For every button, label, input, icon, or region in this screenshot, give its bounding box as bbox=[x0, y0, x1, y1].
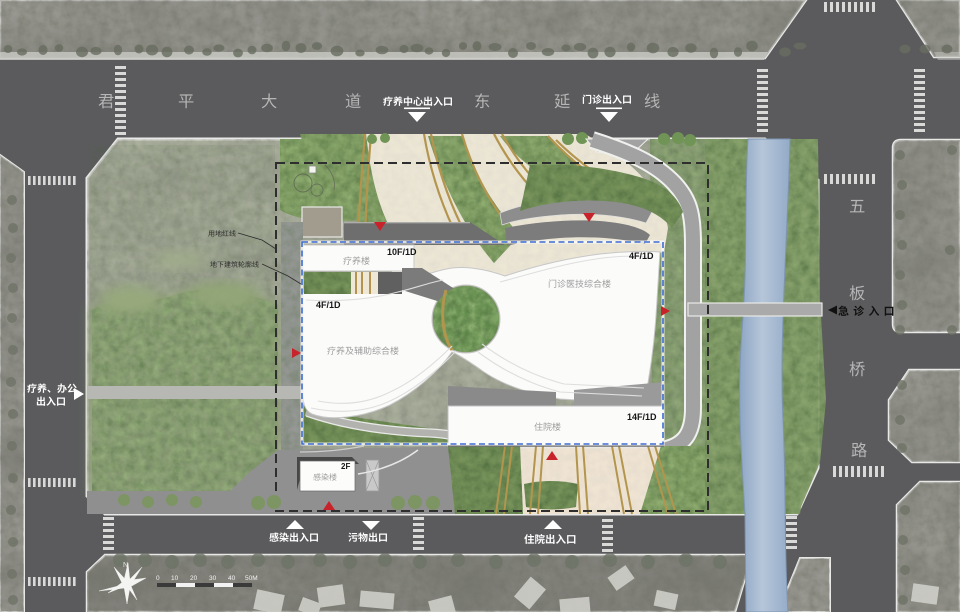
svg-text:4F/1D: 4F/1D bbox=[629, 251, 654, 261]
svg-text:30: 30 bbox=[209, 575, 217, 582]
svg-text:0: 0 bbox=[156, 575, 160, 582]
svg-text:2F: 2F bbox=[341, 462, 350, 471]
svg-text:40: 40 bbox=[228, 575, 236, 582]
svg-text:10F/1D: 10F/1D bbox=[387, 247, 417, 257]
svg-text:20: 20 bbox=[190, 575, 198, 582]
svg-text:14F/1D: 14F/1D bbox=[627, 412, 657, 422]
svg-text:4F/1D: 4F/1D bbox=[316, 300, 341, 310]
svg-text:50M: 50M bbox=[245, 575, 258, 582]
svg-text:10: 10 bbox=[171, 575, 179, 582]
